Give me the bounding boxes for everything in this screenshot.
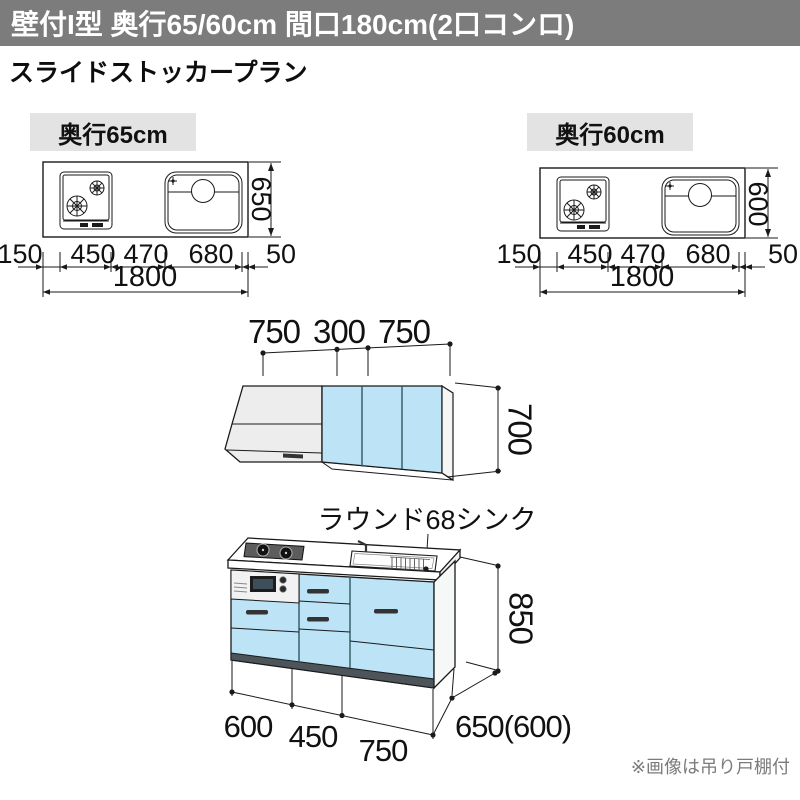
dim-150: 150 bbox=[496, 239, 541, 269]
dim-680: 680 bbox=[188, 239, 233, 269]
base-cabinet-body bbox=[231, 561, 455, 688]
burner-large-icon bbox=[67, 196, 87, 216]
counter-outline bbox=[540, 168, 745, 238]
wall-cabinet-doors bbox=[322, 386, 453, 480]
dim-450: 450 bbox=[567, 239, 612, 269]
dim-700: 700 bbox=[501, 403, 538, 456]
dim-50: 50 bbox=[768, 239, 798, 269]
plan-view-60: 600 150 450 470 680 50 bbox=[496, 168, 798, 297]
dim-650: 650 bbox=[246, 176, 276, 221]
oven-knob bbox=[280, 577, 286, 583]
dim-600-base: 600 bbox=[224, 709, 273, 744]
kitchen-diagrams: 650 150 450 470 680 50 bbox=[0, 0, 800, 800]
burner-small-icon bbox=[90, 181, 104, 195]
sink-drain-dot bbox=[423, 566, 428, 571]
dimension-height-850: 850 bbox=[460, 557, 539, 674]
dimension-base-depth: 650(600) bbox=[433, 669, 571, 744]
range-hood bbox=[225, 386, 322, 462]
cooktop-plan bbox=[557, 177, 609, 231]
drawer-handle bbox=[307, 589, 329, 594]
oven-knob bbox=[280, 586, 286, 592]
dimension-depth-650: 650 bbox=[246, 162, 281, 237]
image-footnote: ※画像は吊り戸棚付 bbox=[631, 753, 790, 779]
dimension-depth-600: 600 bbox=[743, 168, 778, 238]
dim-850: 850 bbox=[502, 592, 539, 645]
oven-panel bbox=[231, 570, 299, 603]
wall-cabinet-side-panel bbox=[442, 386, 453, 480]
sink-plan bbox=[662, 177, 739, 235]
drawer-handle bbox=[246, 610, 268, 615]
dim-750-b: 750 bbox=[378, 313, 431, 350]
dim-1800: 1800 bbox=[610, 261, 675, 293]
base-side-panel bbox=[434, 561, 455, 688]
dim-1800: 1800 bbox=[113, 261, 178, 293]
sink-type-label: ラウンド68シンク bbox=[317, 505, 536, 535]
dim-600: 600 bbox=[743, 181, 773, 226]
drawer-handle bbox=[307, 617, 329, 622]
counter-outline bbox=[43, 162, 248, 237]
dim-300: 300 bbox=[313, 313, 366, 350]
dim-450-base: 450 bbox=[289, 719, 338, 754]
dim-680: 680 bbox=[685, 239, 730, 269]
kitchen-spec-sheet: 壁付I型 奥行65/60cm 間口180cm(2口コンロ) スライドストッカープ… bbox=[0, 0, 800, 800]
dim-750-a: 750 bbox=[248, 313, 301, 350]
dim-50: 50 bbox=[266, 239, 296, 269]
dim-650-600: 650(600) bbox=[455, 709, 571, 744]
dim-750-base: 750 bbox=[359, 733, 408, 768]
burner-small-icon bbox=[587, 185, 601, 199]
dimension-wall-height-700: 700 bbox=[447, 383, 538, 477]
base-cabinet-elevation: ラウンド68シンク bbox=[224, 505, 571, 768]
cooktop-top bbox=[244, 543, 304, 560]
dim-450: 450 bbox=[70, 239, 115, 269]
wall-cabinet-elevation: 750 300 750 bbox=[225, 313, 538, 480]
dim-150: 150 bbox=[0, 239, 43, 269]
plan-view-65: 650 150 450 470 680 50 bbox=[0, 162, 296, 297]
drawer-handle bbox=[374, 609, 398, 614]
cooktop-plan bbox=[60, 172, 112, 229]
sink-plan bbox=[165, 172, 242, 233]
burner-large-icon bbox=[564, 200, 584, 220]
